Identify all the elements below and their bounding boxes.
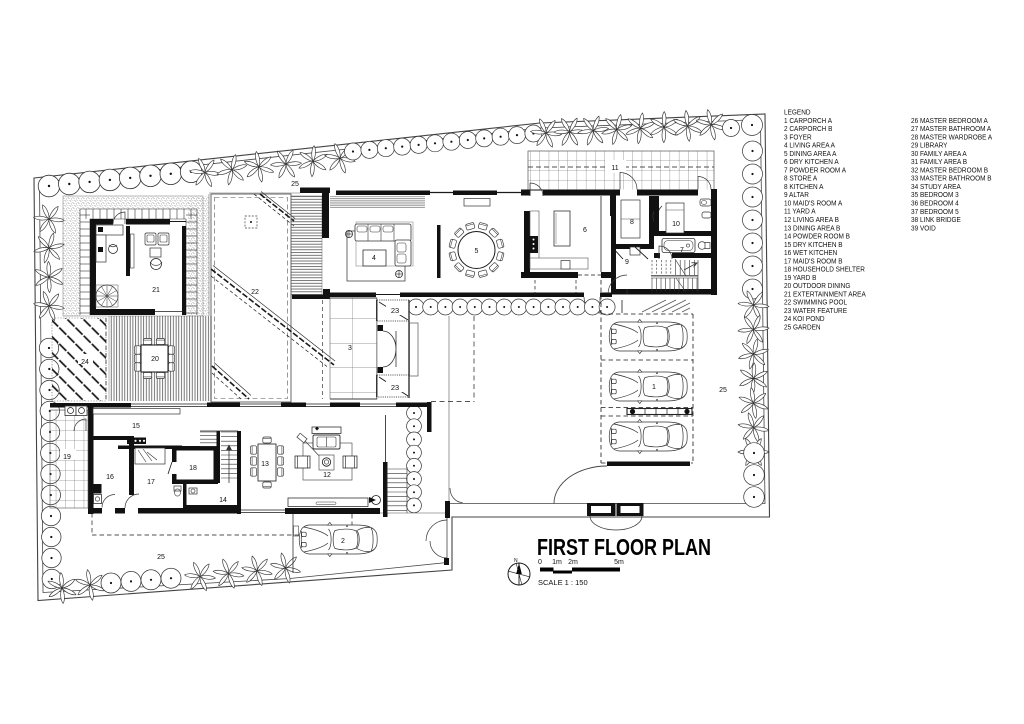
svg-text:27 MASTER BATHROOM A: 27 MASTER BATHROOM A	[911, 126, 991, 134]
svg-text:36 BEDROOM 4: 36 BEDROOM 4	[911, 200, 959, 208]
svg-text:0: 0	[538, 559, 542, 566]
svg-text:17: 17	[147, 479, 155, 486]
svg-text:33 MASTER BATHROOM B: 33 MASTER BATHROOM B	[911, 175, 992, 183]
svg-text:1m: 1m	[552, 559, 562, 566]
svg-text:25 GARDEN: 25 GARDEN	[784, 324, 821, 332]
svg-text:37 BEDROOM 5: 37 BEDROOM 5	[911, 208, 959, 216]
svg-text:8 KITCHEN A: 8 KITCHEN A	[784, 184, 824, 192]
svg-text:6: 6	[583, 227, 587, 234]
svg-text:15: 15	[132, 423, 140, 430]
svg-text:2: 2	[341, 538, 345, 545]
svg-text:18 HOUSEHOLD SHELTER: 18 HOUSEHOLD SHELTER	[784, 266, 865, 274]
svg-text:7: 7	[680, 247, 684, 254]
svg-text:19 YARD B: 19 YARD B	[784, 275, 817, 283]
svg-text:11 YARD A: 11 YARD A	[784, 208, 816, 216]
svg-text:10 MAID'S ROOM A: 10 MAID'S ROOM A	[784, 200, 843, 208]
svg-text:21: 21	[152, 287, 160, 294]
svg-text:LEGEND: LEGEND	[784, 109, 811, 117]
svg-text:12: 12	[323, 472, 331, 479]
svg-text:23: 23	[391, 306, 399, 315]
svg-text:3: 3	[348, 345, 352, 352]
svg-text:29 LIBRARY: 29 LIBRARY	[911, 142, 948, 150]
svg-text:3 FOYER: 3 FOYER	[784, 134, 812, 142]
svg-text:16: 16	[106, 474, 114, 481]
svg-text:19: 19	[63, 454, 71, 461]
svg-text:23 WATER FEATURE: 23 WATER FEATURE	[784, 308, 847, 316]
svg-text:39 VOID: 39 VOID	[911, 225, 936, 233]
svg-text:24 KOI POND: 24 KOI POND	[784, 316, 825, 324]
svg-text:5: 5	[475, 248, 479, 255]
svg-text:2m: 2m	[568, 559, 578, 566]
svg-text:FIRST FLOOR PLAN: FIRST FLOOR PLAN	[537, 534, 711, 560]
svg-text:23: 23	[391, 383, 399, 392]
svg-text:20 OUTDOOR DINING: 20 OUTDOOR DINING	[784, 283, 850, 291]
svg-text:18: 18	[189, 465, 197, 472]
svg-text:31 FAMILY AREA B: 31 FAMILY AREA B	[911, 159, 967, 167]
svg-text:8 STORE A: 8 STORE A	[784, 175, 818, 183]
svg-text:25: 25	[291, 181, 299, 188]
svg-text:6 DRY KITCHEN A: 6 DRY KITCHEN A	[784, 159, 839, 167]
svg-text:5 DINING AREA A: 5 DINING AREA A	[784, 150, 837, 158]
svg-text:4: 4	[372, 255, 376, 262]
svg-text:20: 20	[151, 356, 159, 363]
svg-text:14: 14	[219, 497, 227, 504]
svg-text:30 FAMILY AREA A: 30 FAMILY AREA A	[911, 151, 967, 159]
svg-text:SCALE 1 : 150: SCALE 1 : 150	[538, 578, 588, 587]
svg-text:8: 8	[630, 219, 634, 226]
svg-text:24: 24	[81, 359, 89, 366]
svg-text:7 POWDER ROOM A: 7 POWDER ROOM A	[784, 167, 846, 175]
svg-text:28 MASTER WARDROBE A: 28 MASTER WARDROBE A	[911, 134, 992, 142]
svg-text:11: 11	[611, 165, 618, 172]
svg-text:22 SWIMMING POOL: 22 SWIMMING POOL	[784, 299, 847, 307]
svg-text:9: 9	[625, 259, 629, 266]
svg-text:1 CARPORCH A: 1 CARPORCH A	[784, 117, 832, 125]
svg-text:17 MAID'S ROOM B: 17 MAID'S ROOM B	[784, 258, 843, 266]
svg-text:34 STUDY AREA: 34 STUDY AREA	[911, 184, 961, 192]
svg-text:32 MASTER BEDROOM B: 32 MASTER BEDROOM B	[911, 167, 988, 175]
svg-text:4 LIVING AREA A: 4 LIVING AREA A	[784, 142, 835, 150]
svg-text:16 WET KITCHEN: 16 WET KITCHEN	[784, 250, 837, 258]
svg-text:15 DRY KITCHEN B: 15 DRY KITCHEN B	[784, 241, 843, 249]
svg-text:38 LINK BRIDGE: 38 LINK BRIDGE	[911, 217, 961, 225]
svg-text:21 EXTERTAINMENT AREA: 21 EXTERTAINMENT AREA	[784, 291, 866, 299]
svg-text:5m: 5m	[614, 559, 624, 566]
svg-text:2 CARPORCH B: 2 CARPORCH B	[784, 126, 833, 134]
svg-text:26 MASTER BEDROOM A: 26 MASTER BEDROOM A	[911, 117, 988, 125]
svg-text:14 POWDER ROOM B: 14 POWDER ROOM B	[784, 233, 850, 241]
svg-text:N: N	[514, 558, 518, 564]
svg-text:12 LIVING AREA B: 12 LIVING AREA B	[784, 217, 839, 225]
svg-text:25: 25	[157, 554, 165, 561]
svg-text:10: 10	[672, 221, 680, 228]
svg-text:9 ALTAR: 9 ALTAR	[784, 192, 809, 200]
svg-text:13 DINING AREA B: 13 DINING AREA B	[784, 225, 841, 233]
svg-text:1: 1	[652, 384, 656, 391]
svg-text:25: 25	[719, 387, 727, 394]
svg-text:22: 22	[251, 289, 259, 296]
svg-text:35 BEDROOM 3: 35 BEDROOM 3	[911, 192, 959, 200]
svg-text:13: 13	[261, 461, 269, 468]
